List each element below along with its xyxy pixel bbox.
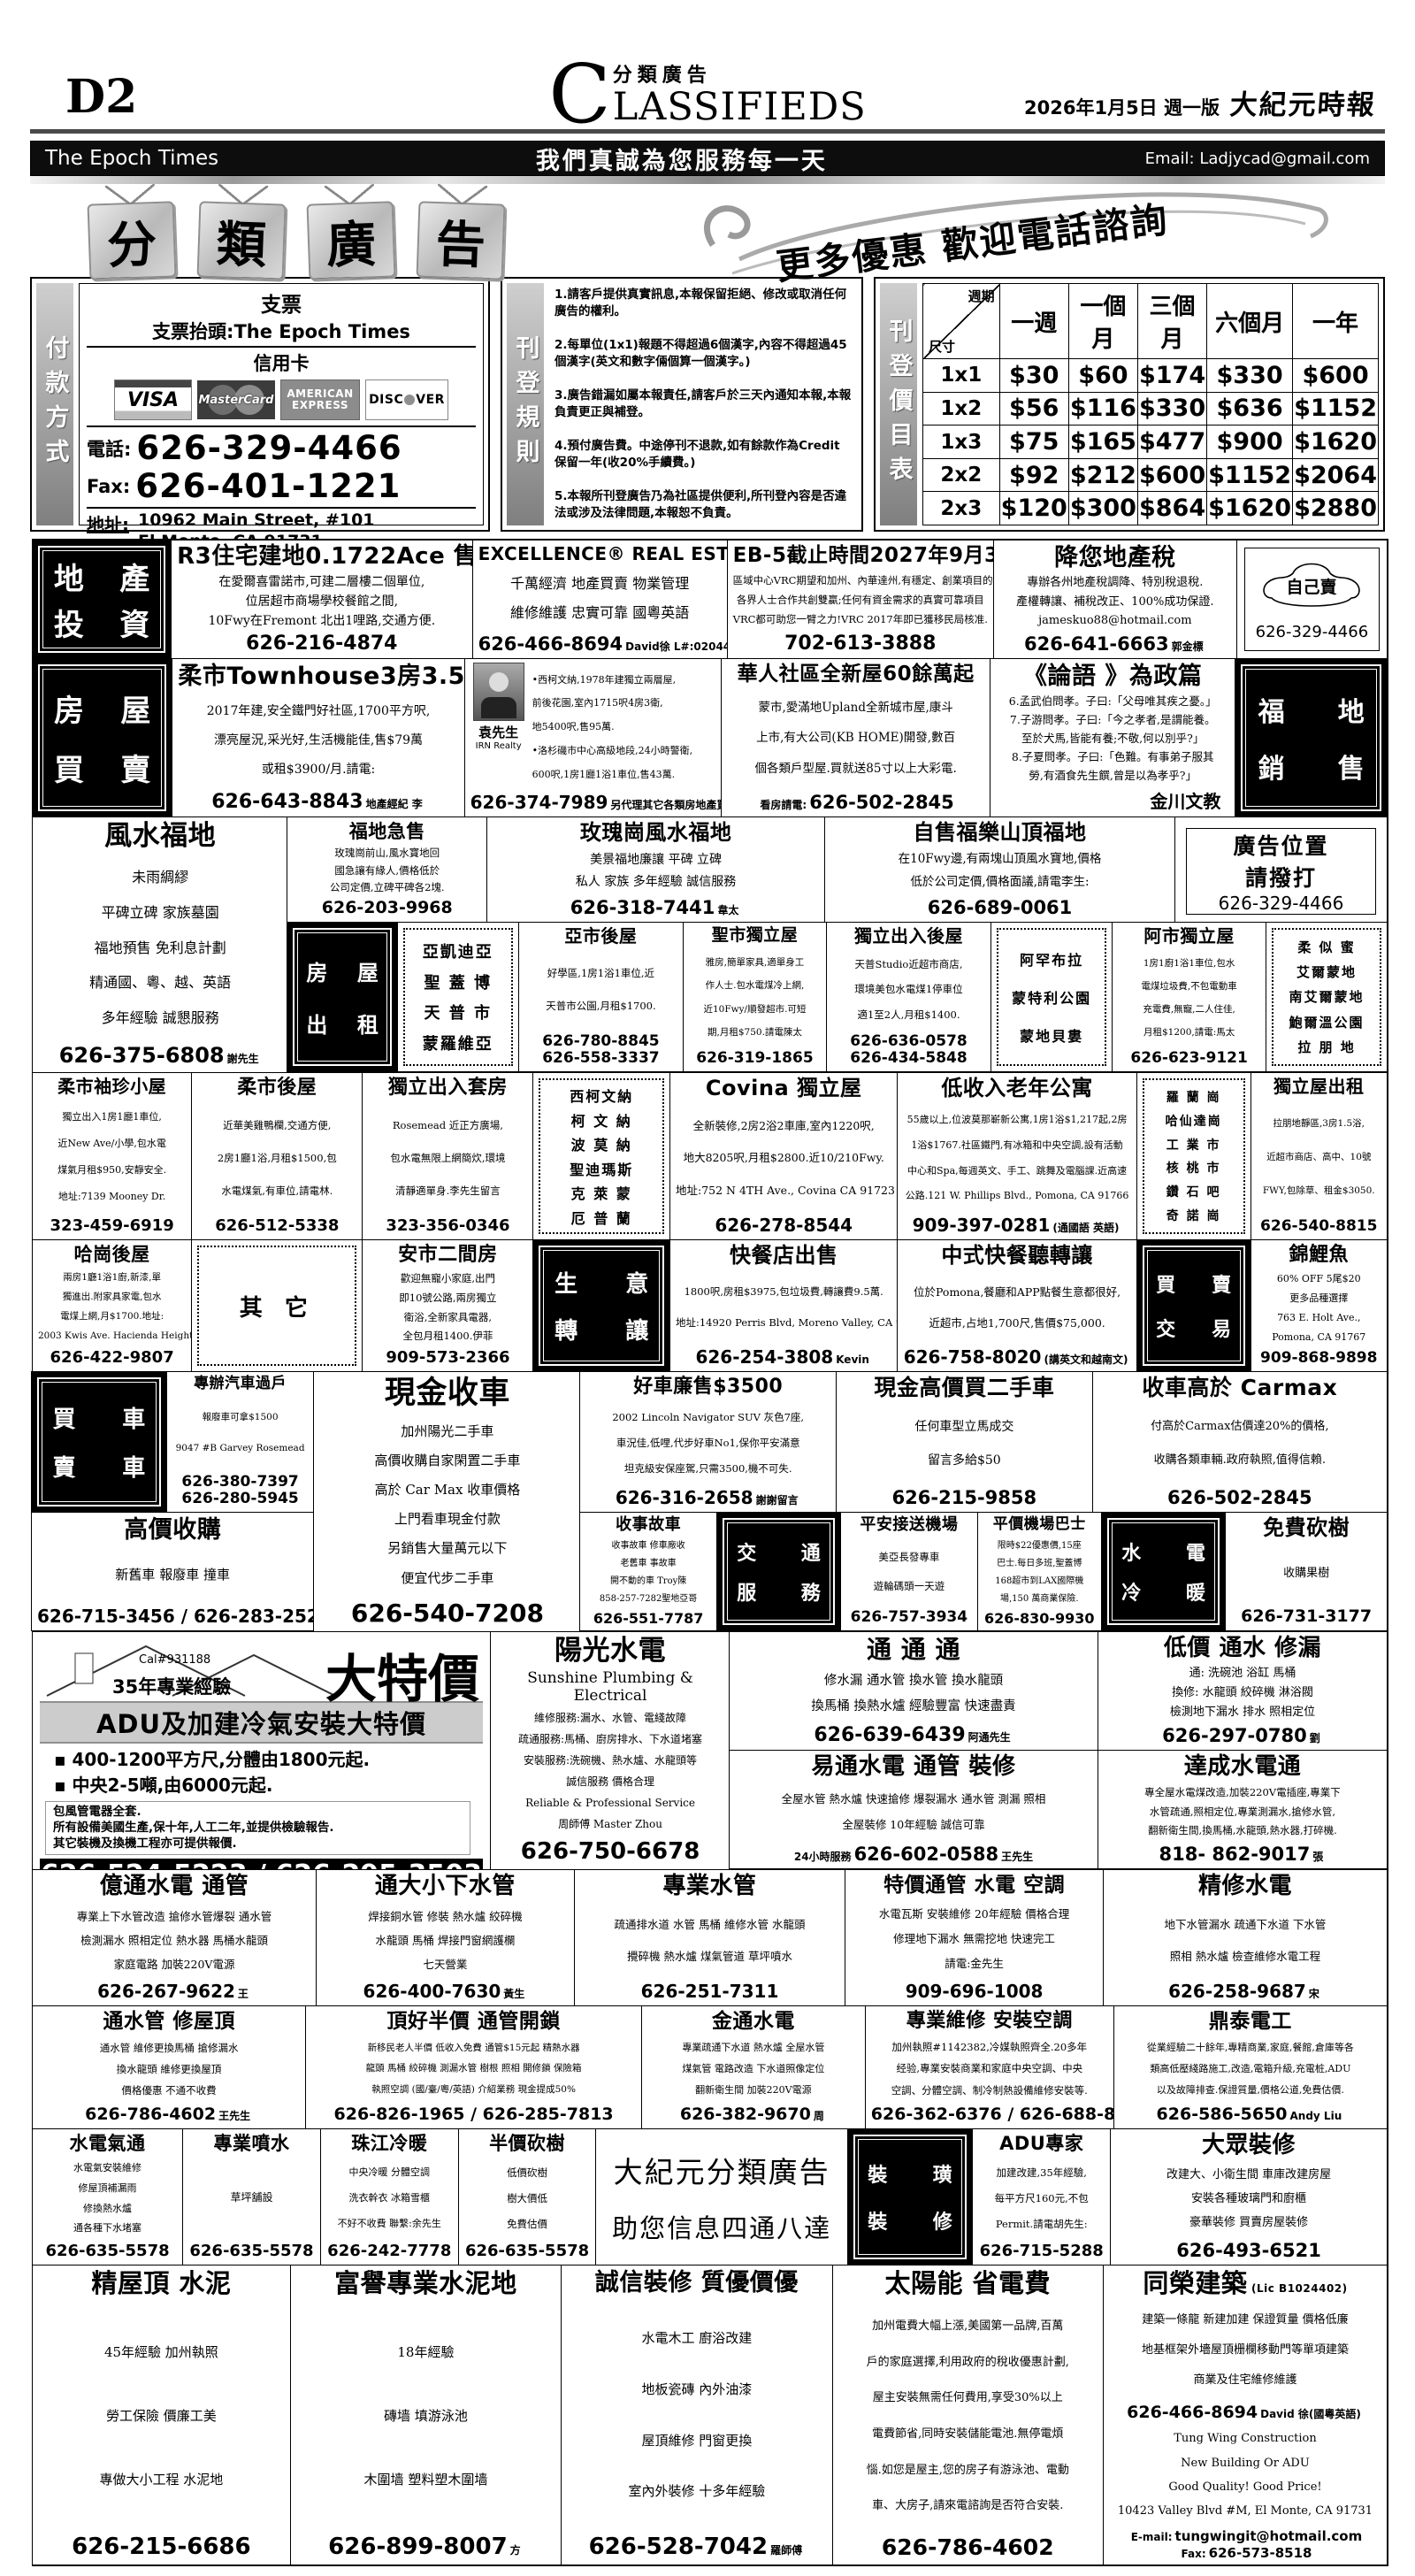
pricing-value-cell: $2880 <box>1293 492 1379 525</box>
phone-line: 626-382-9670周 <box>647 2105 860 2125</box>
category-char: 屋 <box>120 686 150 730</box>
pricing-column-header: 一年 <box>1293 284 1379 359</box>
sale-note-line: 包風管電器全套. <box>53 1804 463 1820</box>
ad-body: 在10Fwy邊,有兩塊山頂風水寶地,價格低於公司定價,價格面議,請電李生: <box>830 846 1169 897</box>
section-title-initial: C <box>548 62 610 127</box>
ad-text-line: 獨進出.附家具家電,包水 <box>38 1292 186 1304</box>
ads-column: 買車賣車專辦汽車過戶報廢車可拿$15009047 #B Garvey Rosem… <box>32 1371 314 1632</box>
ad-title: 現金高價買二手車 <box>842 1376 1087 1401</box>
ad-title: 現金收車 <box>319 1376 575 1411</box>
phone-line: 626-400-7630黃生 <box>322 1982 569 2002</box>
ad-body: 2002 Lincoln Navigator SUV 灰色7座,車況佳,低哩,代… <box>585 1398 830 1488</box>
ad-text-line: 焊接銅水管 修裝 熱水爐 絞碎機 <box>322 1910 569 1924</box>
ad-body: 報廢車可拿$15009047 #B Garvey Rosemead <box>172 1393 309 1474</box>
category-char: 房 <box>306 955 327 986</box>
category-label: 交通服務 <box>716 1512 841 1631</box>
ad-text-line: 经验,專業安裝商業和家庭中央空調、中央 <box>871 2062 1108 2075</box>
category-chars: 冷暖 <box>1121 1577 1205 1606</box>
sale-bullet-line: ▪ 中央2-5噸,由6000元起. <box>54 1773 483 1798</box>
ad-text-line: 通各種下水堵塞 <box>38 2222 177 2235</box>
ad-text-line: 個各類戶型屋.買就送85寸以上大彩電. <box>727 762 984 778</box>
phone-line: 626-731-3177 <box>1231 1607 1381 1627</box>
ad-text-line: 請電:金先生 <box>851 1957 1098 1971</box>
ad-text-line: 開不動的車 Troy陳 <box>585 1575 710 1587</box>
category-chars: 地產 <box>54 555 149 598</box>
ad-text-line: 地址:7139 Mooney Dr. <box>38 1191 186 1203</box>
classified-ad: 柔市Townhouse3房3.5浴2017年建,安全鐵門好社區,1700平方呎,… <box>172 658 464 817</box>
classified-ad: 專業水管疏通排水道 水管 馬桶 維修水管 水龍頭攪碎機 熱水爐 煤氣管道 草坪噴… <box>574 1869 845 2006</box>
phone-number: 702-613-3888 <box>784 632 936 655</box>
classified-ad: 柔市後屋近華美雞鴨欄,交通方便,2房1廳1浴,月租$1500,包水電煤氣,有車位… <box>191 1072 363 1240</box>
ad-title: 半價砍樹 <box>464 2133 591 2154</box>
phone-prefix: E-mail: <box>1131 2531 1173 2543</box>
phone-suffix: 方 <box>510 2544 521 2557</box>
phone-number: 626-502-2845 <box>1167 1487 1312 1508</box>
ad-body-secondary: Tung Wing ConstructionNew Building Or AD… <box>1109 2423 1381 2528</box>
office-fax: 626-401-1221 <box>135 467 401 505</box>
phone-number: 626-715-5288 <box>980 2242 1104 2260</box>
category-frame: 裝璜裝修 <box>853 2135 968 2259</box>
pricing-row: 1x2$56$116$330$636$1152 <box>923 392 1379 425</box>
ad-body: 專全屋水電煤改造,加裝220V電插座,專業下水管疏通,照相定位,專業測漏水,搶修… <box>1104 1781 1381 1844</box>
ad-text-line: 煤氣管 電路改造 下水道照像定位 <box>647 2063 860 2075</box>
ad-title: 玫瑰崗風水福地 <box>493 821 819 846</box>
ad-text-line: 6.孟武伯問孝。子曰:「父母唯其疾之憂。」 <box>996 694 1229 709</box>
ad-title: 獨立屋出租 <box>1257 1077 1382 1097</box>
ad-text-line: 樹大價低 <box>464 2192 591 2205</box>
page-header: D2 C 分類廣告 LASSIFIEDS 2026年1月5日 週一版 大紀元時報 <box>30 0 1385 134</box>
category-char: 賣 <box>53 1450 76 1483</box>
phone-number: 909-397-0281 <box>913 1215 1051 1236</box>
ad-title: 快餐店出售 <box>676 1244 891 1269</box>
phone-line: 626-750-6678 <box>496 1839 724 1866</box>
ad-text-line: 適1至2人,月租$1400. <box>832 1008 985 1022</box>
ad-title: 專業水管 <box>580 1874 839 1900</box>
ad-text-line: 老舊車 事故車 <box>585 1558 710 1569</box>
phone-line: 909-696-1008 <box>851 1982 1098 2002</box>
phone-line: 626-316-2658謝謝留言 <box>585 1488 830 1508</box>
ad-body: 限時$22優惠價,15座巴士.每日多班,聖蓋博168超市到LAX國際機場,150… <box>983 1534 1096 1611</box>
ad-body: 45年經驗 加州執照勞工保險 價廉工美專做大小工程 水泥地 <box>38 2298 285 2534</box>
ad-text-line: 車、大房子,請來電諮詢是否符合安裝. <box>838 2499 1098 2514</box>
ads-band: 億通水電 通管專業上下水管改造 搶修水管爆裂 通水管檢測漏水 照相定位 熱水器 … <box>33 1869 1388 2006</box>
realtor-name: 袁先生 <box>478 723 518 741</box>
category-char: 修 <box>933 2206 952 2235</box>
phone-number: 626-280-5945 <box>181 1490 298 1507</box>
phone-number: 626-434-5848 <box>850 1049 967 1067</box>
classified-ad: 華人社區全新屋60餘萬起蒙市,愛滿地Upland全新城市屋,康斗上市,有大公司(… <box>721 658 990 817</box>
phone-line: 24小時服務626-602-0588王先生 <box>735 1844 1092 1865</box>
area-name: 西柯文納 <box>570 1085 633 1106</box>
phone-line: 626-639-6439阿通先生 <box>735 1724 1092 1746</box>
ad-body: 美景福地廉讓 平碑 立碑私人 家族 多年經驗 誠信服務 <box>493 846 819 897</box>
classified-ad: 現金高價買二手車任何車型立馬成交留言多給$50626-215-9858 <box>836 1371 1093 1513</box>
category-chars: 服務 <box>737 1577 821 1606</box>
classified-ad: 水電氣通水電氣安裝維修修屋頂補漏雨修換熱水爐通各種下水堵塞626-635-557… <box>32 2128 183 2265</box>
category-char: 務 <box>801 1577 821 1606</box>
visa-card-logo: VISA <box>114 379 192 420</box>
category-chars: 轉讓 <box>555 1313 648 1345</box>
ad-body: 付高於Carmax估價達20%的價格,收購各類車輛.政府執照,值得信賴. <box>1098 1401 1381 1487</box>
ad-text-line: 雅房,簡單家具,適單身工 <box>689 957 821 970</box>
ads-band: 精屋頂 水泥45年經驗 加州執照勞工保險 價廉工美專做大小工程 水泥地626-2… <box>33 2265 1388 2565</box>
ad-text-line: 屋頂維修 門窗更換 <box>567 2433 826 2450</box>
phone-number: 626-639-6439 <box>814 1724 965 1746</box>
rule-item: 4.預付廣告費。中途停刊不退款,如有餘款作為Credit保留一年(收20%手續費… <box>555 438 852 471</box>
area-list: 羅 蘭 崗哈仙達崗工 業 市核 桃 市鑽 石 吧奇 諾 崗 <box>1136 1072 1251 1240</box>
ad-text-line: 水龍頭 馬桶 焊接門窗網護欄 <box>322 1934 569 1948</box>
phone-line: 626-641-6663郭金標 <box>999 633 1231 655</box>
ad-text-line: 近超市商店、高中、10號 <box>1257 1152 1382 1164</box>
gold-ingot-icon: 自己賣 <box>1259 557 1364 614</box>
ad-title: 柔市後屋 <box>197 1077 356 1099</box>
ad-text-line: 空調、分體空調、制冷制熱設備維修安裝等. <box>871 2084 1108 2097</box>
ad-body: 通: 洗碗池 浴缸 馬桶換修: 水龍頭 絞碎機 淋浴閥檢測地下漏水 排水 照相定… <box>1104 1662 1381 1725</box>
ad-text-line: 低於公司定價,價格面議,請電李生: <box>830 875 1169 891</box>
phone-line: 626-466-8694David 徐(國粵英語) <box>1109 2403 1381 2423</box>
pricing-value-cell: $900 <box>1207 425 1293 459</box>
ad-text-line: 專業上下水管改造 搶修水管爆裂 通水管 <box>38 1910 310 1924</box>
ad-text-line: 平碑立碑 家族墓園 <box>38 904 282 923</box>
ads-band: 通水管 修屋頂通水管 維修更換馬桶 搶修漏水換水龍頭 維修更換屋頂價格優惠 不通… <box>33 2005 1388 2129</box>
phone-number: 626-731-3177 <box>1241 1606 1372 1626</box>
category-label: 買賣交易 <box>1136 1239 1251 1372</box>
ad-text-line: 9047 #B Garvey Rosemead <box>172 1443 309 1455</box>
phone-number: 909-696-1008 <box>906 1981 1044 2002</box>
ad-text-line: 遊輪碼頭一天遊 <box>846 1580 971 1593</box>
ad-title: 大眾裝修 <box>1116 2133 1381 2159</box>
discover-text: VER <box>416 393 445 407</box>
phone-number: 626-899-8007 <box>328 2534 508 2560</box>
phone-number: 323-459-6919 <box>50 1216 174 1235</box>
ad-text-line: 2003 Kwis Ave. Hacienda Heights <box>38 1330 186 1343</box>
ad-title: 同榮建築 (Lic B1024402) <box>1109 2269 1381 2298</box>
phone-line: 626-203-9968 <box>293 899 481 918</box>
phone-line: 626-715-5288 <box>978 2242 1105 2261</box>
phone-suffix: 韋太 <box>717 904 738 916</box>
classified-ad: 億通水電 通管專業上下水管改造 搶修水管爆裂 通水管檢測漏水 照相定位 熱水器 … <box>32 1869 317 2006</box>
ad-text-line: 至於犬馬,皆能有養;不敬,何以別乎?」 <box>996 732 1229 746</box>
ad-title: 低收入老年公寓 <box>903 1077 1130 1101</box>
ad-body: 加州執照#1142382,冷媒執照齊全.20多年经验,專業安裝商業和家庭中央空調… <box>871 2032 1108 2105</box>
ad-text-line: 國急讓有緣人,價格低於 <box>293 864 481 878</box>
ad-body: 專辦各州地產稅調降、特別稅退稅.產權轉讓、補稅改正、100%成功保證.james… <box>999 571 1231 633</box>
ad-text-line: 美亞長發專車 <box>846 1551 971 1564</box>
ad-text-line: 環境美包水電煤1停車位 <box>832 983 985 996</box>
phone-suffix: 王先生 <box>1001 1851 1033 1863</box>
classified-ad: 珠江冷暖中央冷暖 分體空調洗衣幹衣 冰箱雪櫃不好不收費 聯繫:余先生626-24… <box>320 2128 459 2265</box>
phone-line: 626-319-1865 <box>689 1050 821 1068</box>
category-chars: 交易 <box>1156 1314 1231 1342</box>
classified-ad: 自售福樂山頂福地在10Fwy邊,有兩塊山頂風水寶地,價格低於公司定價,價格面議,… <box>824 816 1175 923</box>
ad-title: 金通水電 <box>647 2010 860 2033</box>
pricing-corner-cell: 週期尺寸 <box>923 284 1000 359</box>
ad-body: 在愛爾喜雷諾市,可建二層樓二個單位,位居超市商場學校餐館之間,10Fwy在Fre… <box>177 571 466 632</box>
rule-item: 5.本報所刊登廣告乃為社區提供便利,所刊登內容是否違法或涉及法律問題,本報恕不負… <box>555 488 852 522</box>
classified-ad: 聖市獨立屋雅房,簡單家具,適單身工作人士.包水電煤冷上網,近10Fwy/順發超市… <box>683 922 827 1072</box>
ad-text-line: 修換熱水爐 <box>38 2203 177 2215</box>
pricing-column-header: 一個月 <box>1068 284 1137 359</box>
area-list-frame: 阿罕布拉蒙特利公園蒙地貝婁 <box>997 928 1106 1066</box>
category-char: 福 <box>1258 690 1285 729</box>
ad-body: 雅房,簡單家具,適單身工作人士.包水電煤冷上網,近10Fwy/順發超市.可短期,… <box>689 946 821 1051</box>
ad-text-line: 場,150 萬商業保險. <box>983 1593 1096 1605</box>
category-frame: 房屋出租 <box>293 928 391 1066</box>
phone-line: 626-786-4602王先生 <box>38 2105 300 2125</box>
ad-text-line: 專業疏通下水道 熱水爐 全屋水管 <box>647 2042 860 2054</box>
ad-text-line: 各界人士合作共創雙贏;任何有資金需求的真實可靠項目 <box>733 594 988 607</box>
pricing-value-cell: $864 <box>1137 492 1206 525</box>
ad-text-line: 區域中心VRC期望和加州、內華達州,有穩定、創業項目的 <box>733 574 988 587</box>
ad-text-line: 電煤垃圾費,不包電動車 <box>1118 981 1260 993</box>
ad-text-line: 七天營業 <box>322 1958 569 1972</box>
phone-line: 看房請電:626-502-2845 <box>727 792 984 813</box>
ad-text-line: 獨立出入1房1廳1車位, <box>38 1111 186 1123</box>
classified-ad: EB-5截止時間2027年9月30日區域中心VRC期望和加州、內華達州,有穩定、… <box>727 540 994 659</box>
category-frame: 買車賣車 <box>37 1377 161 1506</box>
phone-number: 626-297-0780 <box>1162 1725 1307 1746</box>
ad-body: 專業上下水管改造 搶修水管爆裂 通水管檢測漏水 照相定位 熱水器 馬桶水龍頭家庭… <box>38 1900 310 1982</box>
ad-text-line: 美景福地廉讓 平碑 立碑 <box>493 852 819 868</box>
phone-suffix: David徐 L#:02044607 <box>625 640 728 653</box>
ad-text-line: 報廢車可拿$1500 <box>172 1412 309 1424</box>
ad-body: 近華美雞鴨欄,交通方便,2房1廳1浴,月租$1500,包水電煤氣,有車位,請電林… <box>197 1099 356 1217</box>
ad-text-line: 漂亮屋況,采光好,生活機能佳,售$79萬 <box>178 732 458 748</box>
phone-number: tungwingit@hotmail.com <box>1175 2528 1363 2544</box>
category-chars: 買賣 <box>54 746 150 789</box>
phone-number: 626-558-3337 <box>542 1049 659 1067</box>
masthead-bar: The Epoch Times 我們真誠為您服務每一天 Email: Ladjy… <box>30 141 1385 176</box>
phone-number: 626-573-8518 <box>1209 2545 1312 2561</box>
ad-text-line: 全新裝修,2房2浴2車庫,室內1220呎, <box>676 1119 891 1133</box>
phone-suffix: 宋 <box>1309 1988 1319 2000</box>
ad-text-line: 加州電費大幅上漲,美國第一品牌,百萬 <box>838 2319 1098 2334</box>
ad-text-line: 木圍墙 塑料塑木圍墙 <box>296 2472 555 2489</box>
hanging-signs: 分類廣告 <box>88 203 504 279</box>
ad-title: 水電氣通 <box>38 2133 177 2154</box>
phone-line: 626-375-6808謝先生 <box>38 1044 282 1069</box>
rule-item: 2.每單位(1x1)報題不得超過6個漢字,內容不得超過45個漢字(英文和數字倆個… <box>555 337 852 371</box>
classified-ad: 《論語 》為政篇6.孟武伯問孝。子曰:「父母唯其疾之憂。」7.子游問孝。子曰:「… <box>990 658 1235 817</box>
ad-text-line: 更多品種選擇 <box>1257 1292 1382 1305</box>
ad-text-line: VRC都可助您一臂之力!VRC 2017年即已獲移民局核准. <box>733 613 988 626</box>
ad-body: 55歲以上,位波莫那嶄新公寓,1房1浴$1,217起,2房1浴$1767.社區鐵… <box>903 1101 1130 1215</box>
ad-body: 歡迎無寵小家庭,出門即10號公路,兩房獨立衛浴,全新家具電器,全包月租1400.… <box>368 1266 527 1349</box>
ad-title: 平價機場巴士 <box>983 1516 1096 1534</box>
check-payee: 支票抬頭:The Epoch Times <box>87 318 476 344</box>
phone-line: 626-757-3934 <box>846 1609 971 1627</box>
phone-suffix: 謝先生 <box>227 1053 259 1065</box>
ad-text-line: 中心和Spa,每週英文、手工、跳舞及電腦課.近高速 <box>903 1165 1130 1177</box>
ad-text-line: 檢測地下漏水 排水 照相定位 <box>1104 1706 1381 1721</box>
ad-title: 安市二間房 <box>368 1244 527 1266</box>
ad-title: EXCELLENCE® REAL ESTATE 卓越地產 <box>478 544 722 564</box>
phone-line: 626-215-6686 <box>38 2534 285 2561</box>
phone-suffix: 羅師傅 <box>770 2544 802 2557</box>
pricing-row: 1x3$75$165$477$900$1620 <box>923 425 1379 459</box>
ad-text-line: 免費估價 <box>464 2218 591 2231</box>
classified-ad: 大眾裝修改建大、小衛生間 車庫改建房屋安裝各種玻璃門和廚櫃豪華裝修 買賣房屋裝修… <box>1110 2128 1388 2265</box>
ads-subrow: 房屋出租亞凱迪亞聖 蓋 博天 普 市蒙羅維亞亞市後屋好學區,1房1浴1車位,近天… <box>287 922 1388 1072</box>
phone-number: 626-826-1965 / 626-285-7813 <box>334 2104 614 2124</box>
pricing-value-cell: $600 <box>1137 458 1206 492</box>
ad-body: 焊接銅水管 修裝 熱水爐 絞碎機水龍頭 馬桶 焊接門窗網護欄七天營業 <box>322 1900 569 1982</box>
area-name: 核 桃 市 <box>1166 1159 1221 1177</box>
pricing-value-cell: $212 <box>1068 458 1137 492</box>
ad-text-line: 產權轉讓、補稅改正、100%成功保證. <box>999 595 1231 610</box>
ad-body: 未雨綢繆平碑立碑 家族墓園福地預售 免利息計劃精通國、粵、越、英語多年經驗 誠懇… <box>38 853 282 1045</box>
category-chars: 賣車 <box>53 1450 146 1483</box>
pricing-value-cell: $1620 <box>1207 492 1293 525</box>
ad-body: 兩房1廳1浴1廚,新漆,單獨進出.附家具家電,包水電煤上網,月$1700.地址:… <box>38 1265 186 1349</box>
pricing-value-cell: $636 <box>1207 392 1293 425</box>
classified-ad: 太陽能 省電費加州電費大幅上漲,美國第一品牌,百萬戶的家庭選擇,利用政府的稅收優… <box>832 2265 1104 2565</box>
phone-number: 626-635-5578 <box>189 2242 313 2260</box>
address-label: 地址: <box>87 510 129 536</box>
phone-number: 626-689-0061 <box>928 897 1073 918</box>
ad-text-line: 兩房1廳1浴1廚,新漆,單 <box>38 1272 186 1284</box>
pricing-table: 週期尺寸一週一個月三個月六個月一年1x1$30$60$174$330$6001x… <box>922 283 1379 525</box>
phone-number: 626-216-4874 <box>246 632 397 655</box>
ad-text-line: 包水電無限上網簡炊,環境 <box>368 1152 527 1165</box>
area-name: 阿罕布拉 <box>1020 948 1083 970</box>
ad-text-line: 公司定價,立碑平碑各2塊. <box>293 881 481 894</box>
ad-text-line: 近New Ave/小學,包水電 <box>38 1138 186 1150</box>
ad-text-line: 執照空調 (國/臺/粵/英語) 介紹業務 現金提成50% <box>311 2084 636 2097</box>
payment-label: 付款方式 <box>36 283 73 525</box>
category-char: 電 <box>1186 1537 1205 1566</box>
classified-ad: 降您地產稅專辦各州地產稅調降、特別稅退稅.產權轉讓、補稅改正、100%成功保證.… <box>993 540 1237 659</box>
payment-box: 付款方式 支票 支票抬頭:The Epoch Times 信用卡 VISAMas… <box>30 277 490 532</box>
ad-text-line: 換修: 水龍頭 絞碎機 淋浴閥 <box>1104 1686 1381 1701</box>
phone-number: 909-868-9898 <box>1260 1349 1377 1367</box>
realtor-listings: •西柯文納,1978年建獨立兩層屋,前後花園,室內1715呎4房3衛,地5400… <box>532 663 716 793</box>
ad-body: 拉朋地靜區,3房1.5浴,近超市商店、高中、10號FWY,包除草、租金$3050… <box>1257 1097 1382 1218</box>
ad-title: 錦鯉魚 <box>1257 1244 1382 1266</box>
phone-number: 626-641-6663 <box>1024 633 1169 655</box>
phone-suffix: 周 <box>814 2110 824 2122</box>
discover-text: DISC <box>369 393 403 407</box>
phone-number: 626-551-7787 <box>593 1610 704 1627</box>
category-char: 地 <box>54 555 84 598</box>
ad-body: 全屋水管 熱水爐 快速搶修 爆裂漏水 通水管 測漏 照相全屋裝修 10年經驗 誠… <box>735 1781 1092 1844</box>
phone-number: 626-258-9687 <box>1168 1981 1306 2002</box>
phone-line: 626-434-5848 <box>832 1050 985 1068</box>
ad-text-line: 勞,有酒食先生饌,曾是以為孝乎?」 <box>996 769 1229 783</box>
ad-text-line: 168超市到LAX國際機 <box>983 1575 1096 1587</box>
phone-number: 626-512-5338 <box>215 1216 339 1235</box>
phone-line: 626-502-2845 <box>1098 1487 1381 1508</box>
page-number: D2 <box>65 70 137 124</box>
pricing-value-cell: $30 <box>999 359 1068 393</box>
ad-text-line: 763 E. Holt Ave., <box>1257 1312 1382 1324</box>
classified-ad: 快餐店出售1800呎,房租$3975,包垃圾費,轉讓費9.5萬.地址:14920… <box>669 1239 898 1372</box>
phone-line: 323-356-0346 <box>368 1217 527 1236</box>
classified-ad: 平價機場巴士限時$22優惠價,15座巴士.每日多班,聖蓋博168超市到LAX國際… <box>977 1512 1102 1631</box>
edition-date: 2026年1月5日 週一版 <box>1024 94 1220 120</box>
category-char: 璜 <box>933 2159 952 2188</box>
phone-line: 626-374-7989另代理其它各類房地產買賣 <box>470 793 716 813</box>
phone-line: 626-586-5650Andy Liu <box>1120 2105 1381 2125</box>
sale-note-line: 其它裝機及換機工程亦可提供報價. <box>53 1836 463 1851</box>
ad-text-line: 未雨綢繆 <box>38 869 282 887</box>
ad-text-line: 私人 家族 多年經驗 誠信服務 <box>493 874 819 890</box>
phone-suffix: 地產經紀 李 <box>366 798 423 810</box>
phone-line: 626-899-8007方 <box>296 2534 555 2561</box>
category-char: 水 <box>1121 1537 1141 1566</box>
ad-body: 玫瑰崗前山,風水寶地回國急讓有緣人,價格低於公司定價,立碑平碑各2塊. <box>293 842 481 899</box>
phone-line: 626-216-4874 <box>177 632 466 655</box>
ad-text-line: 高於 Car Max 收車價格 <box>319 1482 575 1499</box>
ad-text-line: 專辦各州地產稅調降、特別稅退稅. <box>999 576 1231 591</box>
ad-text-line: 1800呎,房租$3975,包垃圾費,轉讓費9.5萬. <box>676 1285 891 1299</box>
sale-title: 大特價 <box>325 1637 479 1712</box>
classified-ad: 半價砍樹低價砍樹樹大價低免費估價626-635-5578 <box>458 2128 597 2265</box>
section-title: C 分類廣告 LASSIFIEDS <box>548 59 866 127</box>
area-list-frame: 羅 蘭 崗哈仙達崗工 業 市核 桃 市鑽 石 吧奇 諾 崗 <box>1143 1078 1245 1234</box>
ad-title: 達成水電通 <box>1104 1754 1381 1781</box>
ad-text-line: 多年經驗 誠懇服務 <box>38 1009 282 1028</box>
ad-body: 好學區,1房1浴1車位,近天普市公園,月租$1700. <box>524 947 677 1033</box>
check-title: 支票 <box>87 287 476 318</box>
area-name: 拉 朋 地 <box>1297 1038 1355 1056</box>
pricing-value-cell: $1152 <box>1293 392 1379 425</box>
ad-text-line: 在10Fwy邊,有兩塊山頂風水寶地,價格 <box>830 852 1169 868</box>
pricing-value-cell: $56 <box>999 392 1068 425</box>
area-name: 艾爾蒙地 <box>1296 962 1357 981</box>
category-char: 產 <box>119 555 149 598</box>
ad-body: 1房1廚1浴1車位,包水電煤垃圾費,不包電動車充電費,無寵,二人住佳,月租$12… <box>1118 947 1260 1050</box>
phone-number: 626-422-9807 <box>50 1348 174 1367</box>
phone-line: 626-623-9121 <box>1118 1050 1260 1068</box>
classified-ad: 鼎泰電工從業經驗二十餘年,專精商業,家庭,餐館,倉庫等各類高低壓綫路施工,改造,… <box>1113 2005 1388 2129</box>
ad-body: 通水管 維修更換馬桶 搶修漏水換水龍頭 維修更換屋頂價格優惠 不通不收費 <box>38 2033 300 2105</box>
ads-subrow: 收事故車收事故車 修車廠收老舊車 事故車開不動的車 Troy陳858-257-7… <box>580 1512 1388 1631</box>
ad-text-line: 任何車型立馬成交 <box>842 1419 1087 1435</box>
hanging-sign: 告 <box>417 201 506 280</box>
phone-number: 626-254-3808 <box>695 1346 833 1368</box>
ad-title: 聖市獨立屋 <box>689 926 821 946</box>
ad-title: Covina 獨立屋 <box>676 1077 891 1101</box>
ad-text-line: 另銷售大量萬元以下 <box>319 1540 575 1558</box>
ad-text-line: 維修維護 忠實可靠 國粵英語 <box>478 604 722 623</box>
sale-bullets: ▪ 400-1200平方尺,分體由1800元起.▪ 中央2-5噸,由6000元起… <box>40 1744 483 1798</box>
phone-number: 626-602-0588 <box>854 1844 999 1865</box>
ad-text-line: 千萬經濟 地產買賣 物業管理 <box>478 575 722 594</box>
pricing-header-row: 週期尺寸一週一個月三個月六個月一年 <box>923 284 1379 359</box>
realtor-info: 袁先生IRN Realty•西柯文納,1978年建獨立兩層屋,前後花園,室內17… <box>470 663 716 793</box>
classified-ad: 通 通 通修水漏 通水管 換水管 換水龍頭換馬桶 換熱水爐 經驗豐富 快速盡責6… <box>729 1631 1098 1751</box>
phone-line: 626-635-5578 <box>464 2242 591 2261</box>
ad-text-line: 福地預售 免利息計劃 <box>38 939 282 958</box>
ads-band: 房屋買賣柔市Townhouse3房3.5浴2017年建,安全鐵門好社區,1700… <box>33 658 1388 817</box>
ad-text-line: 專做大小工程 水泥地 <box>38 2472 285 2489</box>
ad-text-line: 改建大、小衛生間 車庫改建房屋 <box>1116 2168 1381 2183</box>
ad-title: 自售福樂山頂福地 <box>830 821 1169 846</box>
ad-text-line: 7.子游問孝。子曰:「今之孝者,是謂能養。 <box>996 713 1229 727</box>
classified-ad: 達成水電通專全屋水電煤改造,加裝220V電插座,專業下水管疏通,照相定位,專業測… <box>1098 1750 1388 1869</box>
house-ad-line: 大紀元分類廣告 <box>601 2149 841 2191</box>
phone-line: 626-540-8815 <box>1257 1218 1382 1236</box>
ad-text-line: 中央冷暖 分體空調 <box>326 2166 453 2179</box>
ad-body: 地下水管漏水 疏通下水道 下水管照相 熱水爐 檢查維修水電工程 <box>1109 1900 1381 1982</box>
classified-ad: 亞市後屋好學區,1房1浴1車位,近天普市公園,月租$1700.626-780-8… <box>518 922 684 1072</box>
phone-line: Fax:626-573-8518 <box>1109 2545 1381 2561</box>
ad-text-line: 近10Fwy/順發超市.可短 <box>689 1004 821 1016</box>
classified-ad: 現金收車加州陽光二手車高價收購自家閑置二手車高於 Car Max 收車價格上門看… <box>313 1371 581 1632</box>
category-char: 出 <box>306 1008 327 1039</box>
category-char: 交 <box>737 1537 756 1566</box>
